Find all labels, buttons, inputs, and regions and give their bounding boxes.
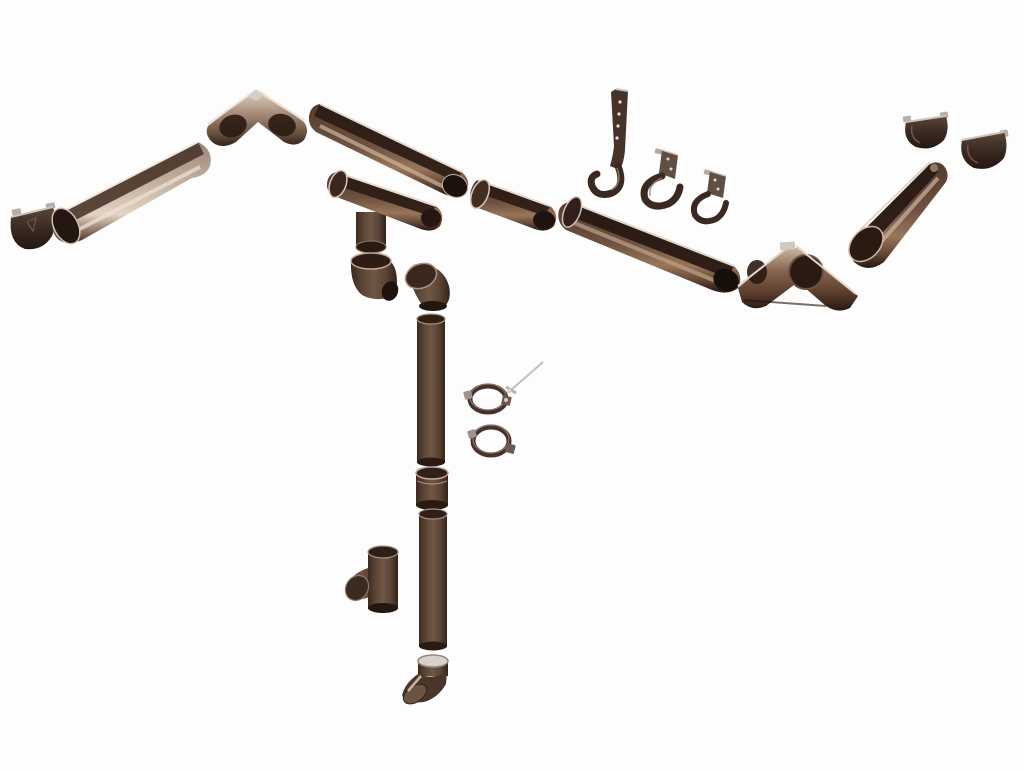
white-background	[0, 0, 1024, 772]
product-photo-gutter-system: Exploded product view of a brown metal r…	[0, 0, 1024, 772]
downpipe-lower	[419, 509, 447, 651]
downpipe-upper	[417, 314, 445, 467]
gutter-system-illustration: Exploded product view of a brown metal r…	[0, 0, 1024, 772]
pipe-coupler	[416, 467, 448, 510]
